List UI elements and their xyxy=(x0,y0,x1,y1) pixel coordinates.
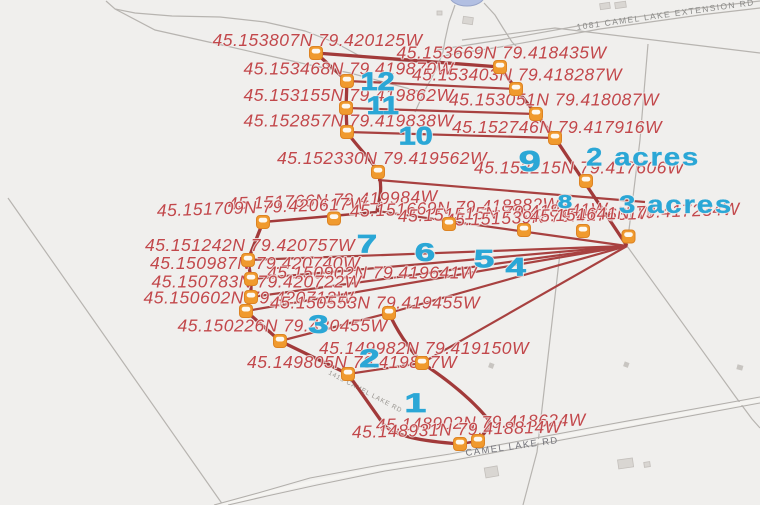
svg-text:45.150553N 79.419455W: 45.150553N 79.419455W xyxy=(270,293,481,313)
svg-text:45.153051N 79.418087W: 45.153051N 79.418087W xyxy=(449,90,660,110)
svg-text:45.153403N 79.418287W: 45.153403N 79.418287W xyxy=(412,65,623,85)
svg-text:45.152330N 79.419562W: 45.152330N 79.419562W xyxy=(277,148,488,168)
svg-text:45.151242N 79.420757W: 45.151242N 79.420757W xyxy=(145,235,356,255)
svg-text:10: 10 xyxy=(399,122,433,150)
svg-text:9: 9 xyxy=(519,145,541,177)
svg-text:8: 8 xyxy=(558,192,572,213)
svg-text:3: 3 xyxy=(308,311,328,339)
svg-text:2: 2 xyxy=(359,344,379,372)
svg-text:2 acres: 2 acres xyxy=(586,143,700,171)
svg-text:6: 6 xyxy=(415,239,435,267)
svg-text:3 acres: 3 acres xyxy=(619,190,733,218)
svg-text:1: 1 xyxy=(405,389,427,419)
svg-text:4: 4 xyxy=(506,253,527,281)
svg-text:7: 7 xyxy=(357,230,377,258)
svg-text:5: 5 xyxy=(474,245,494,273)
svg-text:45.150226N 79.420455W: 45.150226N 79.420455W xyxy=(178,316,389,336)
svg-text:11: 11 xyxy=(367,92,399,120)
